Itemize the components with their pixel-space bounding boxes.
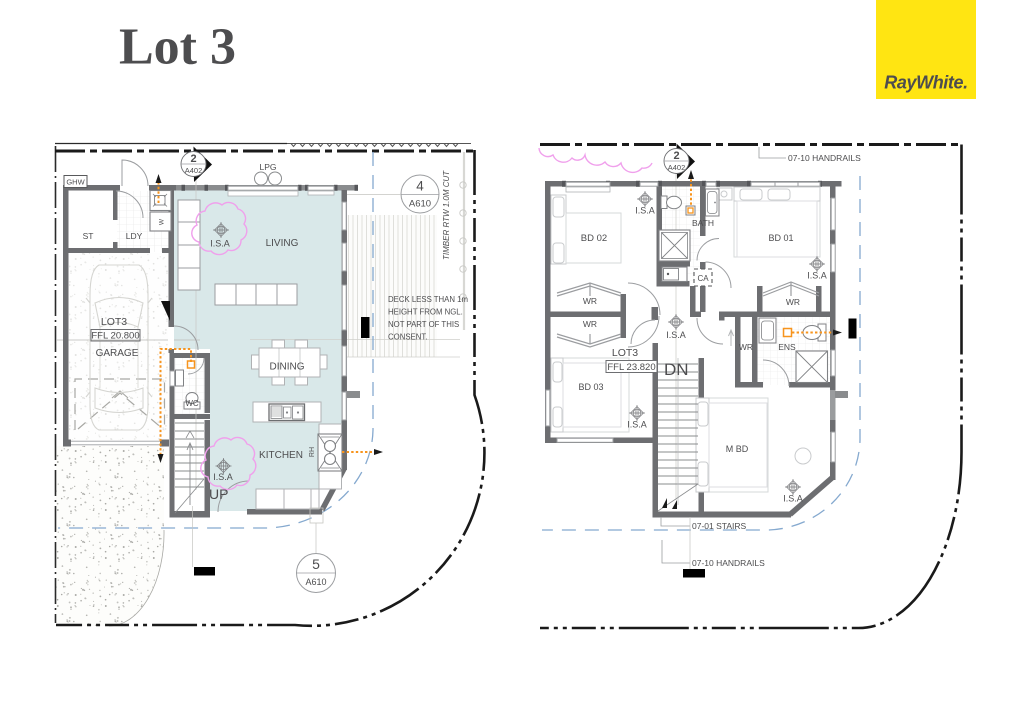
svg-text:RayWhite.: RayWhite. — [884, 73, 967, 93]
svg-text:M BD: M BD — [726, 444, 749, 454]
svg-text:A610: A610 — [409, 199, 431, 210]
svg-text:UP: UP — [209, 486, 228, 502]
svg-text:WR: WR — [786, 297, 800, 307]
svg-text:I.S.A: I.S.A — [635, 206, 655, 216]
svg-text:I.S.A: I.S.A — [213, 472, 233, 482]
svg-text:2: 2 — [190, 153, 196, 165]
svg-text:W: W — [159, 218, 166, 225]
svg-text:WC: WC — [185, 399, 199, 408]
svg-text:TIMBER RTW 1.0M CUT: TIMBER RTW 1.0M CUT — [442, 170, 451, 260]
svg-text:GHW: GHW — [66, 178, 85, 187]
svg-text:Lot 3: Lot 3 — [119, 19, 236, 76]
svg-text:BD 01: BD 01 — [768, 233, 793, 243]
svg-text:RH: RH — [309, 447, 316, 457]
svg-text:I.S.A: I.S.A — [666, 330, 686, 340]
svg-text:2: 2 — [673, 150, 679, 162]
svg-text:HEIGHT FROM NGL.: HEIGHT FROM NGL. — [388, 308, 463, 317]
svg-text:A402: A402 — [185, 166, 203, 175]
svg-text:BD 02: BD 02 — [581, 233, 607, 244]
svg-text:LDY: LDY — [126, 231, 143, 241]
svg-text:07-10 HANDRAILS: 07-10 HANDRAILS — [692, 558, 765, 568]
svg-text:ENS: ENS — [778, 342, 796, 352]
svg-text:CA: CA — [697, 274, 709, 283]
svg-text:CONSENT.: CONSENT. — [388, 333, 427, 342]
svg-text:NOT PART OF THIS: NOT PART OF THIS — [388, 320, 459, 329]
svg-text:BATH: BATH — [692, 218, 714, 228]
svg-text:ST: ST — [83, 231, 94, 241]
svg-text:I.S.A: I.S.A — [210, 239, 230, 249]
svg-text:DINING: DINING — [270, 362, 305, 373]
svg-text:LIVING: LIVING — [266, 238, 299, 249]
svg-text:LOT3: LOT3 — [101, 316, 127, 328]
svg-text:07-01 STAIRS: 07-01 STAIRS — [692, 521, 747, 531]
svg-text:KITCHEN: KITCHEN — [259, 450, 303, 461]
svg-text:DECK LESS THAN 1m: DECK LESS THAN 1m — [388, 295, 468, 304]
svg-text:FFL 23.820: FFL 23.820 — [607, 362, 655, 373]
svg-text:I.S.A: I.S.A — [807, 271, 827, 281]
svg-text:4: 4 — [416, 179, 424, 194]
svg-text:GARAGE: GARAGE — [96, 348, 139, 359]
svg-text:WR: WR — [583, 319, 597, 329]
svg-text:FFL 20.800: FFL 20.800 — [91, 331, 139, 342]
svg-text:BD 03: BD 03 — [578, 382, 603, 392]
svg-text:I.S.A: I.S.A — [627, 420, 647, 430]
svg-text:LPG: LPG — [259, 162, 276, 172]
svg-text:07-10 HANDRAILS: 07-10 HANDRAILS — [788, 153, 861, 163]
svg-text:WR: WR — [583, 296, 597, 306]
svg-text:I.S.A: I.S.A — [783, 494, 803, 504]
svg-text:5: 5 — [312, 556, 320, 572]
svg-text:DN: DN — [664, 360, 689, 379]
svg-text:WR: WR — [739, 342, 753, 352]
svg-text:A402: A402 — [668, 163, 686, 172]
svg-text:A610: A610 — [305, 577, 326, 587]
svg-text:LOT3: LOT3 — [612, 347, 638, 359]
